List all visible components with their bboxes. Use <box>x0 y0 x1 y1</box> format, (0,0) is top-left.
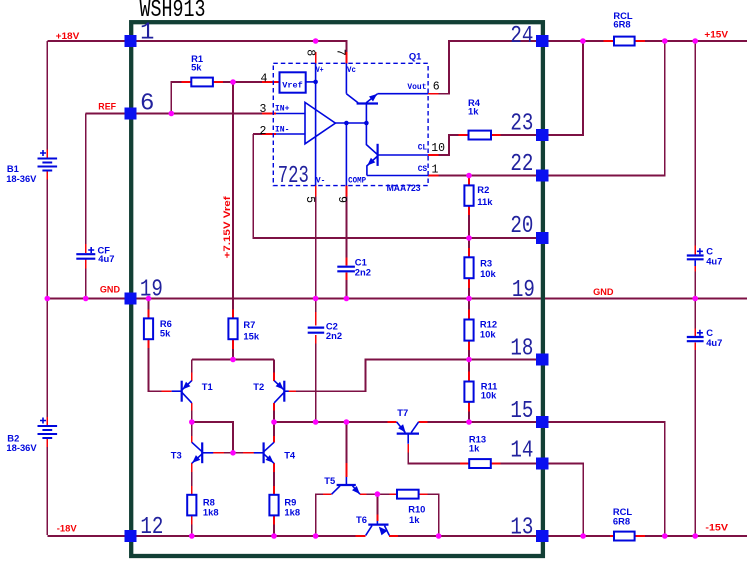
svg-text:12: 12 <box>140 514 163 541</box>
svg-text:1: 1 <box>432 164 439 177</box>
svg-text:1k: 1k <box>468 105 479 116</box>
svg-text:V-: V- <box>316 176 326 186</box>
svg-text:1k8: 1k8 <box>203 507 219 518</box>
svg-text:2n2: 2n2 <box>326 330 342 341</box>
svg-text:Vc: Vc <box>347 65 356 75</box>
svg-text:-15V: -15V <box>705 522 728 533</box>
svg-text:R3: R3 <box>480 258 492 269</box>
svg-text:1: 1 <box>140 19 154 46</box>
svg-text:7: 7 <box>333 49 346 56</box>
svg-text:8: 8 <box>303 49 316 56</box>
svg-text:15k: 15k <box>243 331 259 342</box>
svg-text:6: 6 <box>433 81 440 94</box>
svg-text:18: 18 <box>510 336 533 363</box>
svg-text:Q1: Q1 <box>409 51 422 62</box>
svg-text:20: 20 <box>510 213 533 240</box>
svg-text:5k: 5k <box>191 61 202 72</box>
svg-text:5k: 5k <box>160 328 171 339</box>
svg-text:9: 9 <box>335 196 348 203</box>
svg-text:+15V: +15V <box>704 29 728 40</box>
svg-text:T2: T2 <box>253 381 264 392</box>
svg-text:1k: 1k <box>409 514 420 525</box>
svg-text:T5: T5 <box>324 475 335 486</box>
svg-text:IN+: IN+ <box>275 104 290 114</box>
svg-text:15: 15 <box>510 398 533 425</box>
svg-text:R7: R7 <box>243 319 255 330</box>
svg-text:6: 6 <box>140 90 154 117</box>
svg-text:GND: GND <box>593 286 614 297</box>
svg-text:CL: CL <box>418 143 428 153</box>
svg-text:T7: T7 <box>397 407 408 418</box>
svg-text:1k8: 1k8 <box>284 507 300 518</box>
svg-text:MAA723: MAA723 <box>387 182 421 193</box>
svg-text:COMP: COMP <box>348 176 366 186</box>
svg-text:10: 10 <box>431 142 445 155</box>
svg-text:19: 19 <box>512 277 535 304</box>
svg-text:2n2: 2n2 <box>355 267 371 278</box>
svg-text:T4: T4 <box>284 450 296 461</box>
svg-text:23: 23 <box>510 111 533 138</box>
svg-text:22: 22 <box>510 151 533 178</box>
svg-text:REF: REF <box>98 100 116 111</box>
svg-text:GND: GND <box>100 284 120 295</box>
svg-text:+7.15V Vref: +7.15V Vref <box>221 195 232 258</box>
svg-text:19: 19 <box>140 277 163 304</box>
svg-text:IN-: IN- <box>275 124 290 134</box>
svg-text:4: 4 <box>260 73 267 86</box>
svg-text:T3: T3 <box>171 450 182 461</box>
svg-text:+18V: +18V <box>56 30 80 41</box>
svg-text:2: 2 <box>259 125 266 138</box>
svg-text:13: 13 <box>510 515 533 542</box>
svg-text:-18V: -18V <box>57 522 78 533</box>
svg-text:723: 723 <box>278 163 309 190</box>
svg-text:6R8: 6R8 <box>613 19 630 30</box>
svg-text:10k: 10k <box>481 390 497 401</box>
svg-text:18-36V: 18-36V <box>6 173 37 184</box>
svg-text:R2: R2 <box>477 184 489 195</box>
svg-text:Vref: Vref <box>282 81 303 91</box>
svg-text:3: 3 <box>259 103 266 116</box>
svg-text:11k: 11k <box>477 196 493 207</box>
svg-text:CS: CS <box>418 164 428 174</box>
svg-text:Vout: Vout <box>407 82 426 92</box>
svg-text:5: 5 <box>303 196 316 203</box>
svg-text:4u7: 4u7 <box>98 253 114 264</box>
svg-text:10k: 10k <box>480 268 496 279</box>
svg-text:1k: 1k <box>469 443 480 454</box>
svg-text:4u7: 4u7 <box>706 337 722 348</box>
svg-text:14: 14 <box>510 438 533 465</box>
svg-text:R10: R10 <box>408 504 425 515</box>
svg-text:4u7: 4u7 <box>706 256 722 267</box>
svg-text:T1: T1 <box>202 381 213 392</box>
svg-text:10k: 10k <box>480 329 496 340</box>
svg-text:V+: V+ <box>316 65 324 75</box>
svg-text:T6: T6 <box>356 514 367 525</box>
svg-text:6R8: 6R8 <box>613 516 630 527</box>
svg-text:24: 24 <box>510 23 533 50</box>
svg-text:18-36V: 18-36V <box>6 442 37 453</box>
